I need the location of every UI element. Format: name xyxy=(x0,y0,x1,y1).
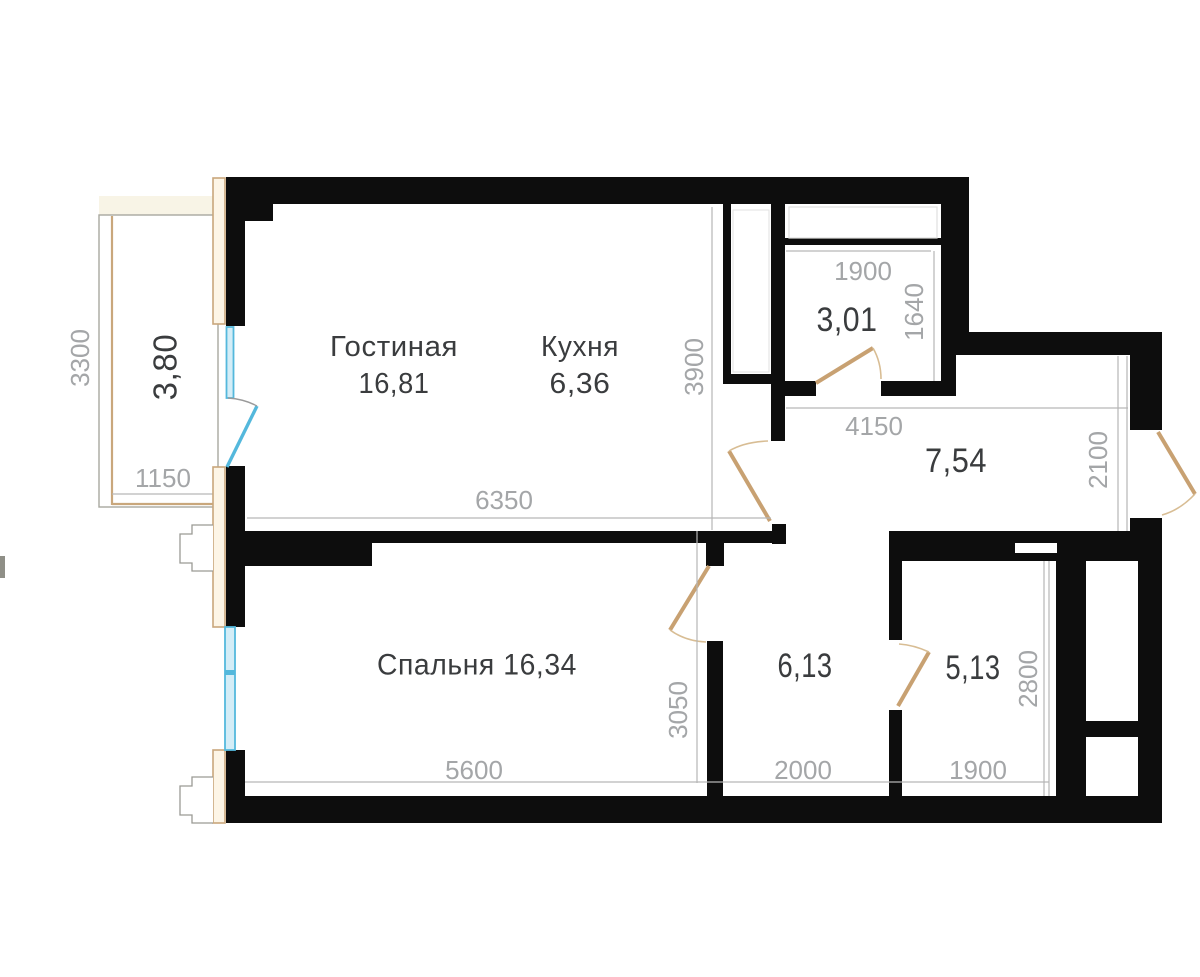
svg-text:3,01: 3,01 xyxy=(817,301,878,339)
svg-text:5600: 5600 xyxy=(445,755,503,785)
svg-text:7,54: 7,54 xyxy=(925,442,987,480)
svg-text:Кухня: Кухня xyxy=(541,331,619,363)
svg-text:3050: 3050 xyxy=(663,681,693,739)
svg-text:6350: 6350 xyxy=(475,485,533,515)
svg-text:1900: 1900 xyxy=(834,256,892,286)
svg-text:16,81: 16,81 xyxy=(359,368,430,400)
svg-text:4150: 4150 xyxy=(845,411,903,441)
svg-text:Спальня 16,34: Спальня 16,34 xyxy=(377,649,577,682)
svg-text:1150: 1150 xyxy=(135,463,191,493)
svg-text:3900: 3900 xyxy=(679,338,709,396)
svg-text:1640: 1640 xyxy=(899,283,929,341)
svg-text:6,36: 6,36 xyxy=(550,368,611,400)
svg-text:6,13: 6,13 xyxy=(778,647,833,685)
svg-text:2000: 2000 xyxy=(774,755,832,785)
svg-text:2100: 2100 xyxy=(1083,431,1113,489)
svg-text:1900: 1900 xyxy=(949,755,1007,785)
svg-text:5,13: 5,13 xyxy=(946,649,1001,687)
svg-text:2800: 2800 xyxy=(1013,650,1043,708)
svg-text:3300: 3300 xyxy=(65,329,95,387)
svg-text:Гостиная: Гостиная xyxy=(330,331,458,363)
svg-text:3,80: 3,80 xyxy=(147,334,184,401)
